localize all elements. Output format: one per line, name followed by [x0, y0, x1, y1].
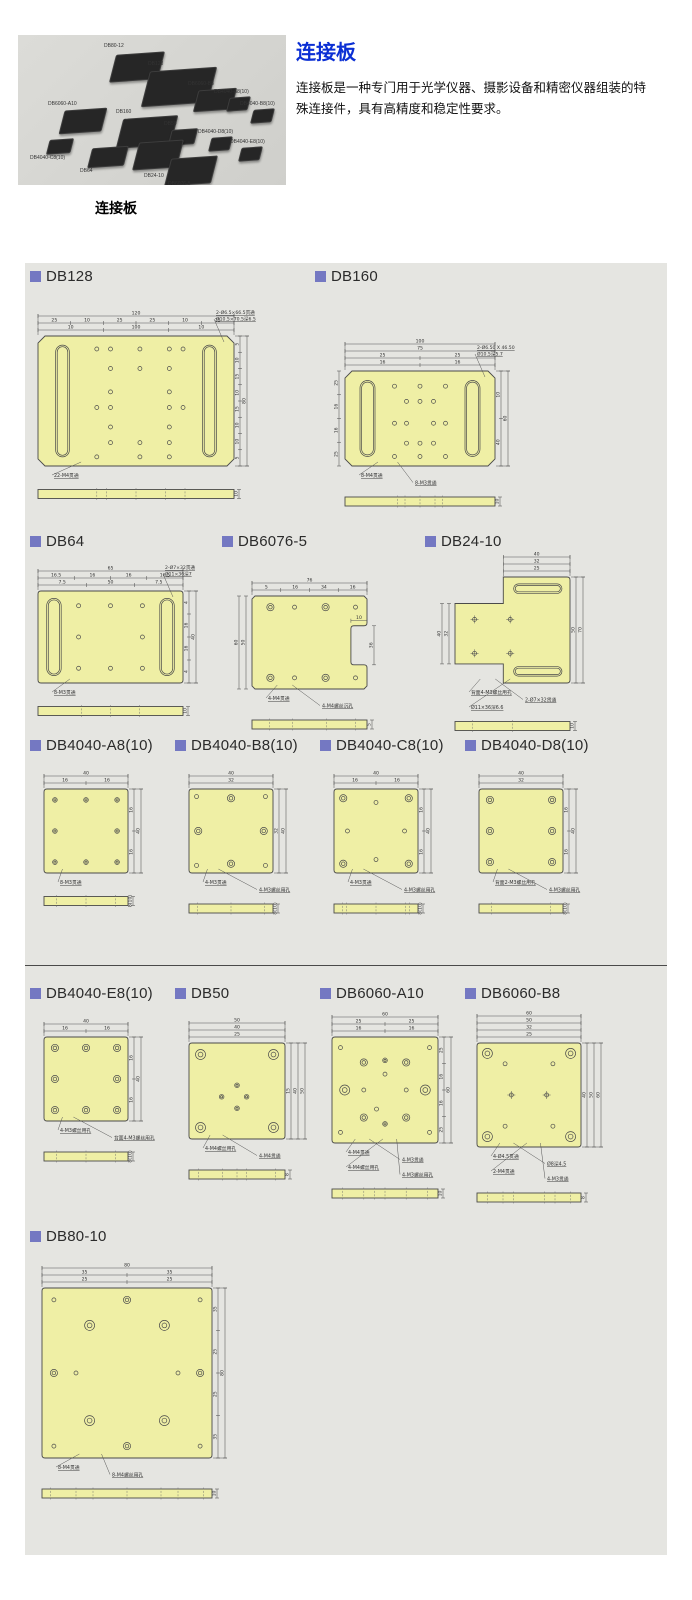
- svg-text:16: 16: [438, 1100, 444, 1106]
- svg-text:40: 40: [292, 1088, 298, 1094]
- svg-text:25: 25: [526, 1031, 532, 1037]
- svg-text:16: 16: [438, 1074, 444, 1080]
- svg-text:25: 25: [409, 1018, 415, 1024]
- section-header: DB4040-B8(10): [175, 735, 317, 755]
- svg-text:2-Ø7×32贯通: 2-Ø7×32贯通: [525, 697, 557, 704]
- svg-text:4-M4螺丝沉孔: 4-M4螺丝沉孔: [322, 703, 353, 710]
- section-title: DB4040-A8(10): [46, 737, 153, 754]
- svg-text:60: 60: [595, 1092, 601, 1098]
- svg-text:8(10): 8(10): [272, 902, 278, 915]
- photo-plate-label: DB4040-C8(10): [30, 155, 65, 161]
- page-description: 连接板是一种专门用于光学仪器、摄影设备和精密仪器组装的特殊连接件，具有高精度和稳…: [296, 78, 652, 119]
- svg-text:80: 80: [219, 1370, 225, 1376]
- section-header: DB64: [30, 531, 228, 551]
- svg-text:8(10): 8(10): [417, 902, 423, 915]
- svg-text:16: 16: [128, 1055, 134, 1061]
- svg-text:背面2-M3螺丝用孔: 背面2-M3螺丝用孔: [495, 879, 536, 886]
- svg-text:40: 40: [280, 828, 286, 834]
- svg-text:10: 10: [494, 499, 500, 505]
- svg-text:25: 25: [356, 1018, 362, 1024]
- section-header: DB6060-B8: [465, 983, 620, 1003]
- svg-text:16: 16: [104, 1025, 110, 1031]
- photo-plate: [59, 108, 108, 135]
- section-title: DB80-10: [46, 1228, 107, 1245]
- svg-text:4: 4: [183, 670, 189, 673]
- svg-text:25: 25: [167, 1276, 173, 1282]
- svg-text:70: 70: [577, 627, 583, 633]
- svg-text:32: 32: [526, 1024, 532, 1030]
- svg-text:16: 16: [333, 427, 339, 433]
- svg-text:60: 60: [526, 1010, 532, 1016]
- svg-text:Ø11×36深7: Ø11×36深7: [165, 571, 192, 578]
- svg-text:4-M4贯通: 4-M4贯通: [268, 695, 290, 702]
- svg-text:25: 25: [333, 380, 339, 386]
- svg-text:40: 40: [373, 770, 379, 776]
- svg-text:25: 25: [234, 1031, 240, 1037]
- svg-text:32: 32: [518, 777, 524, 783]
- svg-text:背面4-M3螺丝用孔: 背面4-M3螺丝用孔: [471, 689, 512, 696]
- svg-text:34: 34: [321, 584, 327, 590]
- technical-drawing-db6076: 765163416605010364-M4贯通4-M4螺丝沉孔5: [222, 551, 418, 737]
- section-bullet-icon: [30, 271, 41, 282]
- section-db6060b: DB6060-B8605032256050404-Ø4.5贯通Ø8深4.52-M…: [465, 983, 620, 1205]
- technical-drawing-db6060a: 602525161660251616254-M4贯通4-M3贯通4-M4螺丝用孔…: [320, 1003, 470, 1203]
- svg-text:16.5: 16.5: [51, 572, 61, 578]
- svg-text:2-Ø6.5×66.5贯通: 2-Ø6.5×66.5贯通: [216, 309, 255, 316]
- svg-text:40: 40: [495, 439, 501, 445]
- photo-plate: [46, 138, 74, 155]
- section-db24: DB24-1040322570504032背面4-M3螺丝用孔2-Ø7×32贯通…: [425, 531, 630, 733]
- svg-text:75: 75: [417, 345, 423, 351]
- svg-text:25: 25: [455, 352, 461, 358]
- svg-text:4-M3螺丝用孔: 4-M3螺丝用孔: [402, 1172, 433, 1179]
- svg-text:60: 60: [502, 416, 508, 422]
- svg-text:10: 10: [495, 392, 501, 398]
- photo-plate-label: DB80-12: [104, 43, 124, 49]
- svg-text:40: 40: [518, 770, 524, 776]
- svg-text:40: 40: [228, 770, 234, 776]
- section-header: DB6076-5: [222, 531, 418, 551]
- svg-text:10: 10: [68, 324, 74, 330]
- svg-text:50: 50: [526, 1017, 532, 1023]
- section-header: DB6060-A10: [320, 983, 470, 1003]
- svg-text:25: 25: [380, 352, 386, 358]
- svg-text:8-M3贯通: 8-M3贯通: [415, 480, 437, 487]
- svg-text:8: 8: [284, 1173, 290, 1176]
- svg-text:8-M4螺丝用孔: 8-M4螺丝用孔: [112, 1472, 143, 1479]
- svg-text:25: 25: [82, 1276, 88, 1282]
- svg-text:16: 16: [352, 777, 358, 783]
- svg-text:5: 5: [265, 584, 268, 590]
- svg-text:35: 35: [212, 1306, 218, 1312]
- section-db4040d: DB4040-D8(10)4032401616背面2-M3螺丝用孔4-M3螺丝用…: [465, 735, 607, 925]
- svg-text:40: 40: [135, 828, 141, 834]
- section-db4040a: DB4040-A8(10)4016164016168-M3贯通8(10): [30, 735, 172, 925]
- svg-text:80: 80: [241, 398, 247, 404]
- svg-text:4-M3贯通: 4-M3贯通: [547, 1176, 569, 1183]
- technical-drawing-db24: 40322570504032背面4-M3螺丝用孔2-Ø7×32贯通Ø11×36深…: [425, 551, 630, 733]
- svg-text:40: 40: [570, 828, 576, 834]
- svg-text:15: 15: [234, 374, 240, 380]
- section-title: DB160: [331, 268, 378, 285]
- svg-text:60: 60: [382, 1011, 388, 1017]
- section-bullet-icon: [222, 536, 233, 547]
- page-title: 连接板: [296, 36, 356, 65]
- svg-text:5: 5: [366, 723, 372, 726]
- catalog-page: DB80-12DB128DB6060-B8DB6060-A10DB4040-A8…: [0, 0, 692, 1600]
- svg-text:50: 50: [588, 1092, 594, 1098]
- section-header: DB50: [175, 983, 323, 1003]
- svg-text:36: 36: [368, 642, 374, 648]
- svg-text:4-M3螺丝用孔: 4-M3螺丝用孔: [60, 1127, 91, 1134]
- svg-text:40: 40: [135, 1076, 141, 1082]
- svg-text:40: 40: [234, 1024, 240, 1030]
- svg-text:32: 32: [443, 631, 449, 637]
- svg-text:50: 50: [570, 627, 576, 633]
- svg-text:16: 16: [394, 777, 400, 783]
- svg-text:100: 100: [132, 324, 141, 330]
- svg-text:50: 50: [234, 1017, 240, 1023]
- section-title: DB64: [46, 533, 84, 550]
- svg-text:2-M4贯通: 2-M4贯通: [493, 1168, 515, 1175]
- svg-text:25: 25: [438, 1127, 444, 1133]
- svg-text:35: 35: [82, 1269, 88, 1275]
- svg-text:25: 25: [51, 317, 57, 323]
- svg-text:10: 10: [234, 439, 240, 445]
- photo-plate-label: DB6060-A10: [48, 101, 77, 107]
- svg-text:10: 10: [437, 1191, 443, 1197]
- svg-text:2-Ø7×32贯通: 2-Ø7×32贯通: [165, 564, 195, 571]
- svg-text:40: 40: [534, 551, 540, 557]
- svg-text:10: 10: [182, 317, 188, 323]
- svg-text:22-M4贯通: 22-M4贯通: [54, 472, 79, 479]
- photo-plate-label: DB128: [148, 61, 163, 67]
- technical-drawing-db4040e: 4016164016164-M3螺丝用孔背面4-M3螺丝用孔8(10): [30, 1003, 172, 1173]
- svg-text:40: 40: [436, 631, 442, 637]
- section-title: DB50: [191, 985, 229, 1002]
- technical-drawing-db6060b: 605032256050404-Ø4.5贯通Ø8深4.52-M4贯通4-M3贯通…: [465, 1003, 620, 1205]
- svg-text:25: 25: [212, 1349, 218, 1355]
- svg-text:16: 16: [380, 359, 386, 365]
- svg-text:4-M4螺丝用孔: 4-M4螺丝用孔: [348, 1164, 379, 1171]
- svg-text:16: 16: [409, 1025, 415, 1031]
- svg-text:35: 35: [167, 1269, 173, 1275]
- section-header: DB160: [315, 266, 600, 286]
- section-db6060a: DB6060-A10602525161660251616254-M4贯通4-M3…: [320, 983, 470, 1203]
- section-db4040c: DB4040-C8(10)4016164016164-M3贯通4-M3螺丝用孔8…: [320, 735, 462, 925]
- technical-drawing-db160: 1007525251616601040251616252-Ø6.50 X 46.…: [315, 286, 600, 518]
- technical-drawing-db4040b: 403240324-M3贯通4-M3螺丝用孔8(10): [175, 755, 317, 925]
- section-db128: DB12812025102525102510100108051015101510…: [30, 266, 315, 522]
- section-bullet-icon: [465, 740, 476, 751]
- svg-text:4-M4螺丝用孔: 4-M4螺丝用孔: [205, 1145, 236, 1152]
- svg-text:16: 16: [183, 646, 189, 652]
- svg-text:8-M4贯通: 8-M4贯通: [361, 472, 383, 479]
- section-title: DB4040-E8(10): [46, 985, 153, 1002]
- svg-text:50: 50: [108, 579, 114, 585]
- section-header: DB24-10: [425, 531, 630, 551]
- section-db4040e: DB4040-E8(10)4016164016164-M3螺丝用孔背面4-M3螺…: [30, 983, 172, 1173]
- svg-text:60: 60: [445, 1087, 451, 1093]
- section-bullet-icon: [30, 536, 41, 547]
- svg-text:7.5: 7.5: [59, 579, 66, 585]
- photo-plate-label: DB4040-B8(10): [240, 101, 275, 107]
- section-db50: DB505040255040154-M4螺丝用孔4-M4贯通8: [175, 983, 323, 1185]
- section-bullet-icon: [320, 988, 331, 999]
- photo-plate-label: DB64: [80, 168, 93, 174]
- section-header: DB4040-D8(10): [465, 735, 607, 755]
- svg-text:Ø8深4.5: Ø8深4.5: [547, 1161, 566, 1168]
- svg-text:16: 16: [418, 849, 424, 855]
- svg-text:7.5: 7.5: [155, 579, 162, 585]
- svg-text:4-M3贯通: 4-M3贯通: [205, 879, 227, 886]
- svg-text:背面4-M3螺丝用孔: 背面4-M3螺丝用孔: [114, 1135, 155, 1142]
- svg-text:25: 25: [534, 565, 540, 571]
- svg-text:4-M4贯通: 4-M4贯通: [348, 1149, 370, 1156]
- svg-text:4-M3贯通: 4-M3贯通: [350, 879, 372, 886]
- svg-text:16: 16: [455, 359, 461, 365]
- svg-text:32: 32: [273, 828, 279, 834]
- photo-plate-label: DB4040-D8(10): [198, 129, 233, 135]
- photo-plate-label: DB160: [116, 109, 131, 115]
- photo-plate-label: DB6060-B8: [188, 81, 214, 87]
- svg-text:16: 16: [418, 807, 424, 813]
- section-bullet-icon: [315, 271, 326, 282]
- svg-text:16: 16: [128, 1097, 134, 1103]
- svg-text:16: 16: [563, 807, 569, 813]
- svg-text:10: 10: [182, 708, 188, 714]
- svg-text:10: 10: [211, 1491, 217, 1497]
- photo-caption: 连接板: [95, 198, 137, 218]
- section-header: DB4040-A8(10): [30, 735, 172, 755]
- section-db64: DB646516.5161616.57.5507.5404161642-Ø7×3…: [30, 531, 228, 719]
- photo-plate-label: DB4040-A8(10): [214, 89, 249, 95]
- svg-text:25: 25: [149, 317, 155, 323]
- svg-text:10: 10: [234, 357, 240, 363]
- svg-text:8-M3贯通: 8-M3贯通: [54, 689, 76, 696]
- svg-text:4-Ø4.5贯通: 4-Ø4.5贯通: [493, 1153, 519, 1160]
- product-photo: DB80-12DB128DB6060-B8DB6060-A10DB4040-A8…: [18, 35, 286, 185]
- technical-drawing-db4040a: 4016164016168-M3贯通8(10): [30, 755, 172, 925]
- section-title: DB4040-D8(10): [481, 737, 589, 754]
- section-db80: DB80-10803535252580352525358-M4贯通8-M4螺丝用…: [30, 1226, 245, 1504]
- photo-plate: [87, 146, 129, 168]
- section-title: DB6060-A10: [336, 985, 424, 1002]
- svg-text:16: 16: [89, 572, 95, 578]
- svg-text:16: 16: [183, 623, 189, 629]
- section-title: DB4040-B8(10): [191, 737, 298, 754]
- svg-text:16: 16: [104, 777, 110, 783]
- svg-text:8: 8: [580, 1196, 586, 1199]
- section-title: DB6076-5: [238, 533, 307, 550]
- section-title: DB6060-B8: [481, 985, 560, 1002]
- svg-text:10: 10: [569, 723, 575, 729]
- svg-text:40: 40: [425, 828, 431, 834]
- svg-text:16: 16: [126, 572, 132, 578]
- svg-text:16: 16: [350, 584, 356, 590]
- photo-plate-label: DB4040-E8(10): [230, 139, 265, 145]
- svg-text:60: 60: [233, 640, 239, 646]
- svg-text:4-M3螺丝用孔: 4-M3螺丝用孔: [549, 887, 580, 894]
- technical-drawing-db50: 5040255040154-M4螺丝用孔4-M4贯通8: [175, 1003, 323, 1185]
- svg-text:5: 5: [234, 456, 240, 459]
- svg-text:40: 40: [83, 1018, 89, 1024]
- technical-drawing-db64: 6516.5161616.57.5507.5404161642-Ø7×32贯通Ø…: [30, 551, 228, 719]
- svg-text:5: 5: [234, 343, 240, 346]
- section-title: DB128: [46, 268, 93, 285]
- svg-text:16: 16: [62, 1025, 68, 1031]
- svg-text:2-Ø6.50 X 46.50: 2-Ø6.50 X 46.50: [477, 344, 515, 351]
- svg-text:15: 15: [234, 406, 240, 412]
- svg-text:4-M4贯通: 4-M4贯通: [259, 1153, 281, 1160]
- section-bullet-icon: [30, 740, 41, 751]
- section-bullet-icon: [425, 536, 436, 547]
- svg-text:50: 50: [299, 1088, 305, 1094]
- svg-text:25: 25: [212, 1391, 218, 1397]
- technical-drawing-db128: 120251025251025101001080510151015101052-…: [30, 286, 315, 522]
- photo-plate-label: DB50: [164, 121, 177, 127]
- svg-text:16: 16: [563, 849, 569, 855]
- section-bullet-icon: [175, 740, 186, 751]
- section-bullet-icon: [465, 988, 476, 999]
- svg-text:16: 16: [333, 404, 339, 410]
- photo-plate: [238, 146, 263, 161]
- svg-text:8-M4贯通: 8-M4贯通: [58, 1464, 80, 1471]
- svg-text:Ø10.5×70.5深6.5: Ø10.5×70.5深6.5: [216, 316, 256, 323]
- svg-text:10: 10: [233, 491, 239, 497]
- section-bullet-icon: [30, 988, 41, 999]
- svg-text:16: 16: [292, 584, 298, 590]
- svg-text:25: 25: [117, 317, 123, 323]
- svg-text:8(10): 8(10): [127, 1150, 133, 1163]
- svg-text:40: 40: [190, 634, 196, 640]
- svg-text:10: 10: [234, 390, 240, 396]
- section-header: DB128: [30, 266, 315, 286]
- svg-text:25: 25: [438, 1047, 444, 1053]
- svg-text:76: 76: [307, 577, 313, 583]
- section-title: DB4040-C8(10): [336, 737, 444, 754]
- section-bullet-icon: [175, 988, 186, 999]
- technical-drawing-db80: 803535252580352525358-M4贯通8-M4螺丝用孔10: [30, 1246, 245, 1504]
- svg-text:10: 10: [84, 317, 90, 323]
- technical-drawing-db4040c: 4016164016164-M3贯通4-M3螺丝用孔8(10): [320, 755, 462, 925]
- svg-text:16: 16: [356, 1025, 362, 1031]
- section-bullet-icon: [30, 1231, 41, 1242]
- section-header: DB4040-C8(10): [320, 735, 462, 755]
- svg-text:Ø10.5深5.7: Ø10.5深5.7: [477, 351, 503, 358]
- svg-text:35: 35: [212, 1434, 218, 1440]
- section-db6076: DB6076-5765163416605010364-M4贯通4-M4螺丝沉孔5: [222, 531, 418, 737]
- technical-drawing-db4040d: 4032401616背面2-M3螺丝用孔4-M3螺丝用孔8(10): [465, 755, 607, 925]
- photo-plate-label: DB6076-5: [168, 181, 191, 185]
- svg-text:15: 15: [285, 1088, 291, 1094]
- section-header: DB80-10: [30, 1226, 245, 1246]
- section-header: DB4040-E8(10): [30, 983, 172, 1003]
- section-db4040b: DB4040-B8(10)403240324-M3贯通4-M3螺丝用孔8(10): [175, 735, 317, 925]
- svg-text:8(10): 8(10): [562, 902, 568, 915]
- svg-text:32: 32: [534, 558, 540, 564]
- svg-text:32: 32: [228, 777, 234, 783]
- svg-text:10: 10: [356, 615, 362, 621]
- svg-text:100: 100: [416, 338, 425, 344]
- svg-text:10: 10: [198, 324, 204, 330]
- svg-text:80: 80: [124, 1262, 130, 1268]
- svg-text:4: 4: [183, 601, 189, 604]
- svg-text:40: 40: [581, 1092, 587, 1098]
- svg-text:8(10): 8(10): [127, 895, 133, 908]
- svg-text:4-M3螺丝用孔: 4-M3螺丝用孔: [404, 887, 435, 894]
- photo-plate: [250, 108, 275, 123]
- section-bullet-icon: [320, 740, 331, 751]
- section-title: DB24-10: [441, 533, 502, 550]
- svg-text:10: 10: [234, 422, 240, 428]
- section-db160: DB1601007525251616601040251616252-Ø6.50 …: [315, 266, 600, 518]
- svg-text:8-M3贯通: 8-M3贯通: [60, 879, 82, 886]
- svg-text:16: 16: [62, 777, 68, 783]
- photo-plate-label: DB24-10: [144, 173, 164, 179]
- svg-text:Ø11×36深6.6: Ø11×36深6.6: [471, 704, 503, 711]
- svg-text:120: 120: [132, 310, 141, 316]
- svg-text:4-M3螺丝用孔: 4-M3螺丝用孔: [259, 887, 290, 894]
- svg-text:16: 16: [128, 807, 134, 813]
- svg-text:16: 16: [128, 849, 134, 855]
- svg-text:65: 65: [108, 565, 114, 571]
- svg-text:50: 50: [240, 640, 246, 646]
- svg-text:4-M3贯通: 4-M3贯通: [402, 1157, 424, 1164]
- svg-text:25: 25: [333, 451, 339, 457]
- svg-text:40: 40: [83, 770, 89, 776]
- section-divider: [25, 965, 667, 966]
